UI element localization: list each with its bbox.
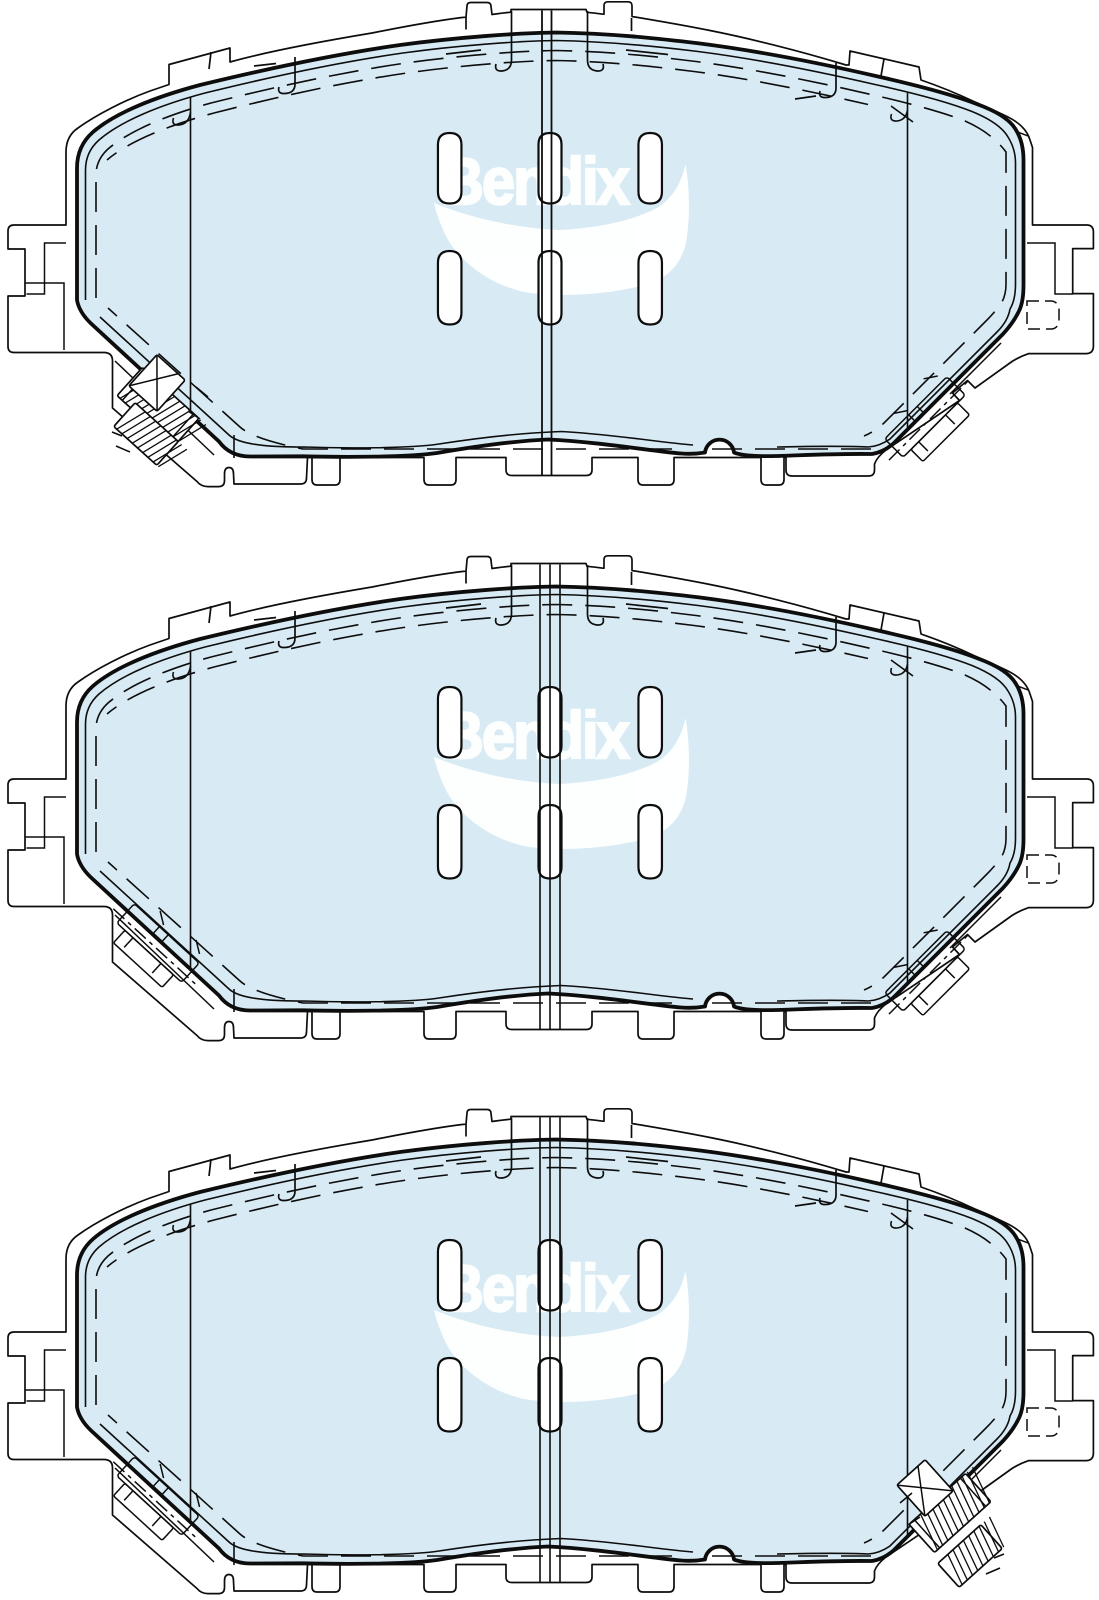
svg-text:Bendix: Bendix xyxy=(441,144,630,218)
svg-text:Bendix: Bendix xyxy=(441,698,630,772)
svg-text:Bendix: Bendix xyxy=(441,1251,630,1325)
